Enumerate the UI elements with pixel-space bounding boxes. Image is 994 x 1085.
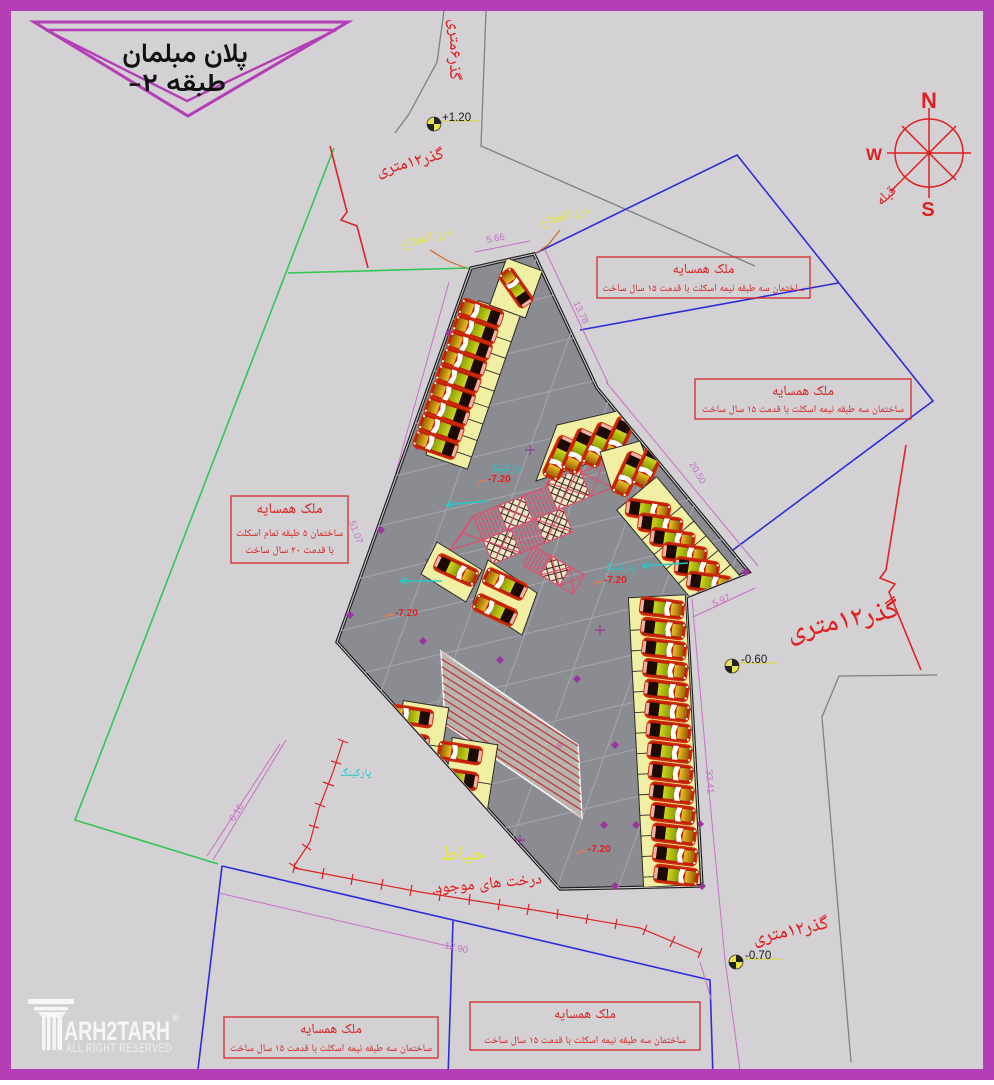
svg-text:ALL RIGHT RESERVED: ALL RIGHT RESERVED: [66, 1041, 172, 1055]
svg-text:-7.20: -7.20: [604, 575, 627, 586]
svg-text:-7.20: -7.20: [488, 474, 511, 485]
svg-text:N: N: [921, 88, 937, 113]
svg-text:-7.20: -7.20: [588, 844, 611, 855]
svg-text:-7.20: -7.20: [395, 608, 418, 619]
svg-text:S: S: [921, 199, 934, 221]
svg-text:-0.70: -0.70: [745, 950, 771, 962]
svg-text:W: W: [866, 145, 883, 164]
svg-text:+1.20: +1.20: [442, 112, 471, 124]
svg-text:33.41: 33.41: [703, 769, 716, 793]
svg-text:®: ®: [172, 1013, 179, 1023]
svg-text:-0.60: -0.60: [741, 654, 767, 666]
